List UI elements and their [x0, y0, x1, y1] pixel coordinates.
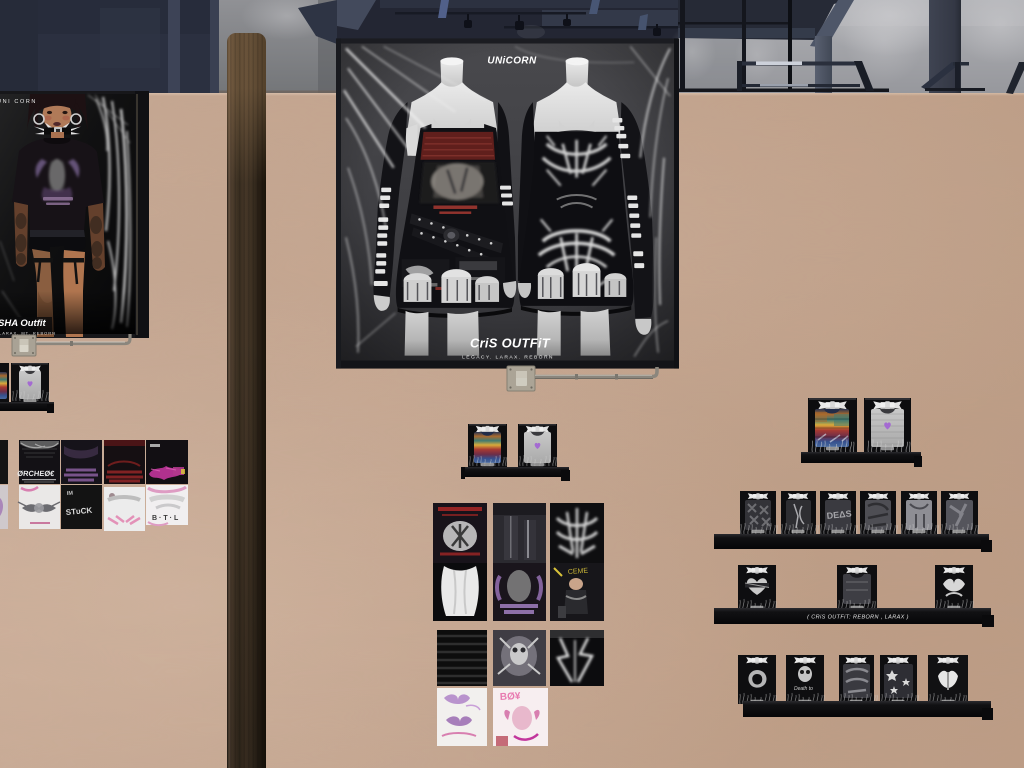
- svg-text:BØ¥: BØ¥: [500, 691, 522, 703]
- svg-text:CEME: CEME: [568, 568, 589, 576]
- svg-text:Death to: Death to: [794, 686, 813, 692]
- svg-text:UNI CORN: UNI CORN: [0, 99, 37, 105]
- svg-text:UNiCORN: UNiCORN: [487, 55, 537, 66]
- svg-text:IM: IM: [67, 491, 74, 497]
- svg-text:( CRiS OUTFiT: REBORN , LARAX: ( CRiS OUTFiT: REBORN , LARAX ): [807, 615, 909, 621]
- svg-text:ØRCHEØ€: ØRCHEØ€: [17, 469, 56, 478]
- svg-text:LEGACY. LARAX. REBORN: LEGACY. LARAX. REBORN: [462, 355, 554, 361]
- svg-text:CriS OUTFiT: CriS OUTFiT: [470, 336, 551, 351]
- svg-text:B·T·L: B·T·L: [152, 515, 180, 522]
- svg-text:SHA Outfit: SHA Outfit: [0, 318, 47, 329]
